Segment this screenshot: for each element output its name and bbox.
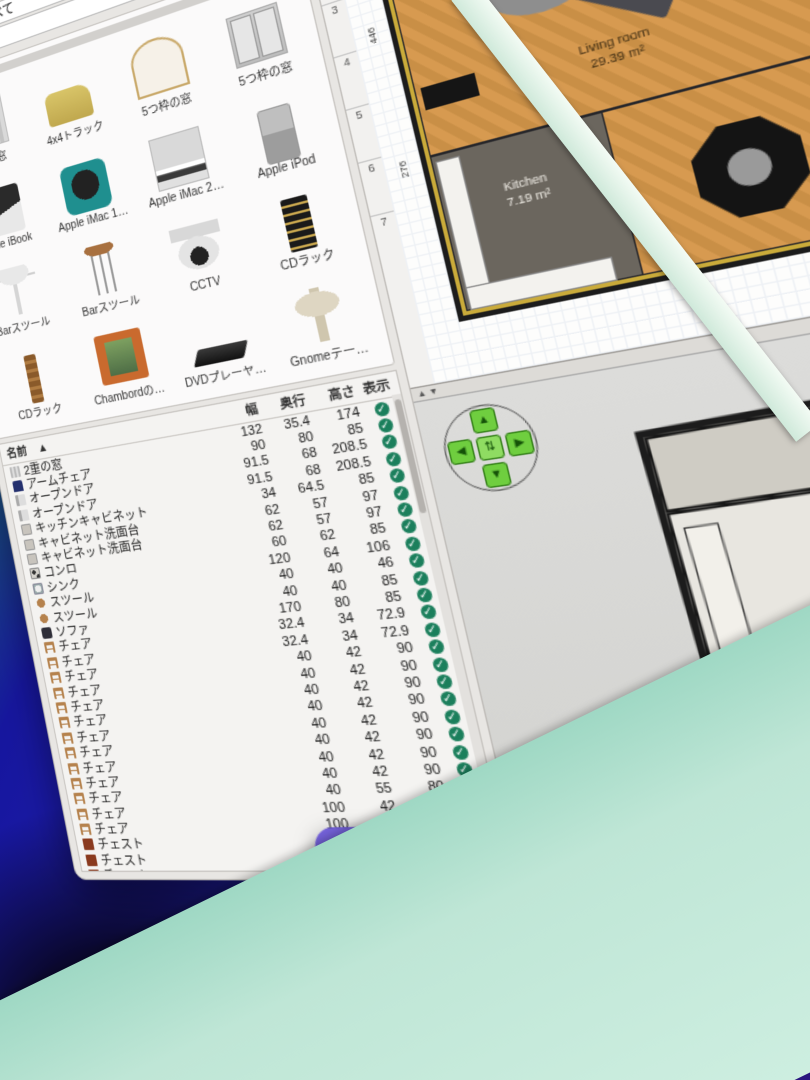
chair-icon <box>76 808 88 820</box>
height-value: 90 <box>386 762 442 780</box>
move-back-button[interactable]: ▼ <box>482 461 513 488</box>
depth-value: 42 <box>325 713 379 731</box>
visible-checkbox[interactable]: ✓ <box>431 657 449 672</box>
visible-checkbox[interactable]: ✓ <box>411 570 429 586</box>
depth-value: 55 <box>339 781 393 798</box>
cctv-thumbnail <box>168 219 228 282</box>
width-value: 40 <box>276 716 328 734</box>
stool-icon <box>35 597 47 609</box>
chair-icon <box>55 702 67 714</box>
visible-checkbox[interactable]: ✓ <box>447 727 465 742</box>
depth-value: 42 <box>321 696 374 714</box>
move-forward-button[interactable]: ▲ <box>469 407 499 434</box>
visible-checkbox[interactable]: ✓ <box>392 485 410 501</box>
visible-checkbox[interactable]: ✓ <box>388 468 405 484</box>
chair-icon <box>44 642 56 654</box>
chair-icon <box>53 687 65 699</box>
visible-checkbox[interactable]: ✓ <box>377 418 394 434</box>
visible-checkbox[interactable]: ✓ <box>415 587 433 603</box>
width-value: 40 <box>287 766 339 783</box>
cab-icon <box>24 538 36 550</box>
depth-value: 42 <box>328 730 382 748</box>
rackw-thumbnail <box>23 354 44 404</box>
sofa-icon <box>41 627 53 639</box>
3d-navigation-compass[interactable]: ▲ ▼ ◀ ▶ ⇅ <box>435 397 547 497</box>
gtable-thumbnail <box>287 282 353 347</box>
stoolw-thumbnail <box>0 262 42 319</box>
chest-icon <box>88 870 101 871</box>
visible-checkbox[interactable]: ✓ <box>443 709 461 724</box>
chair-icon <box>64 747 76 759</box>
dimension-label: 276 <box>396 160 412 179</box>
rackb-thumbnail <box>280 194 318 253</box>
visible-checkbox[interactable]: ✓ <box>396 502 414 518</box>
visible-checkbox[interactable]: ✓ <box>384 451 401 467</box>
ibook-thumbnail <box>0 182 26 240</box>
elevation-button[interactable]: ⇅ <box>475 434 506 461</box>
visible-checkbox[interactable]: ✓ <box>373 401 390 417</box>
width-value: 40 <box>284 749 336 766</box>
kitchen-counter-plan[interactable] <box>465 256 618 310</box>
dining-table-plan[interactable] <box>684 108 810 225</box>
sort-ascending-icon: ▲ <box>36 440 49 455</box>
dimension-label: 446 <box>365 26 380 46</box>
height-value: 90 <box>375 710 431 728</box>
chest-icon <box>85 854 97 866</box>
turn-left-button[interactable]: ◀ <box>446 439 476 466</box>
imac1-thumbnail <box>59 156 114 217</box>
furniture-name: チェスト <box>102 866 152 871</box>
chair-icon <box>58 717 70 729</box>
width-value: 40 <box>273 699 324 717</box>
sink-icon <box>32 582 44 594</box>
stove-icon <box>29 568 41 580</box>
imac2-thumbnail <box>148 126 210 192</box>
ipod-thumbnail <box>256 102 301 165</box>
depth-value: 42 <box>336 764 390 781</box>
turn-right-button[interactable]: ▶ <box>504 429 535 457</box>
stool-icon <box>38 612 50 624</box>
width-value: 40 <box>269 682 320 700</box>
width-value: 40 <box>280 732 332 749</box>
visible-checkbox[interactable]: ✓ <box>400 519 418 535</box>
depth-value: 42 <box>332 747 386 764</box>
visible-checkbox[interactable]: ✓ <box>427 639 445 654</box>
width-value: 100 <box>294 800 346 816</box>
visible-checkbox[interactable]: ✓ <box>439 691 457 706</box>
visible-checkbox[interactable]: ✓ <box>407 553 425 569</box>
photo-scene: 無題 2 ☐▤⇓↶↷✂▣▦⊞↖☞▭▱∿↔AA⊖⊕▦▶◔ カテゴリ: すべて ▾ … <box>0 0 810 1080</box>
visible-checkbox[interactable]: ✓ <box>419 604 437 620</box>
height-value: 90 <box>371 692 427 711</box>
frame-thumbnail <box>93 327 149 386</box>
stoolt-thumbnail <box>76 239 131 299</box>
height-value: 90 <box>379 727 435 745</box>
chair-icon <box>79 824 91 836</box>
chair-icon <box>50 672 62 684</box>
chair-icon <box>47 657 59 669</box>
cab-icon <box>26 553 38 565</box>
chair-icon <box>61 732 73 744</box>
visible-checkbox[interactable]: ✓ <box>380 434 397 450</box>
width-value: 40 <box>291 783 343 800</box>
chair-icon <box>70 778 82 790</box>
visible-checkbox[interactable]: ✓ <box>403 536 421 552</box>
height-value: 90 <box>383 744 439 762</box>
visible-checkbox[interactable]: ✓ <box>435 674 453 689</box>
chair-icon <box>73 793 85 805</box>
chest-icon <box>82 839 94 851</box>
chair-icon <box>67 762 79 774</box>
visible-checkbox[interactable]: ✓ <box>423 622 441 638</box>
visible-checkbox[interactable]: ✓ <box>451 744 469 759</box>
cab-icon <box>21 524 33 536</box>
